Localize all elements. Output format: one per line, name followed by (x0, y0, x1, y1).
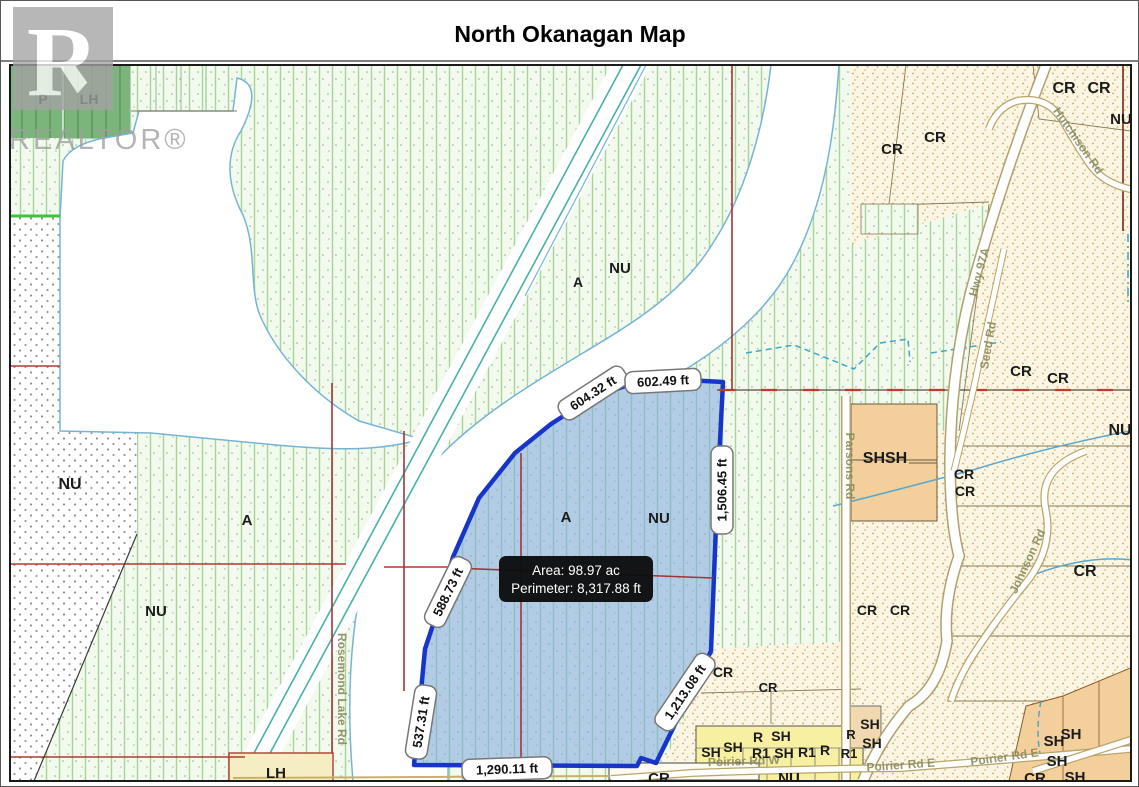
zone-label-a: A (242, 512, 253, 529)
svg-text:602.49 ft: 602.49 ft (637, 372, 690, 390)
zone-label-cr: CR (648, 770, 670, 787)
zone-label-cr: CR (1010, 363, 1032, 380)
zone-label-sh: SH (1065, 769, 1086, 786)
measurement-label: 602.49 ft (624, 368, 701, 394)
zone-label-a: A (573, 274, 583, 290)
zone-label-cr: CR (857, 602, 877, 618)
zone-label-nu: NU (145, 603, 167, 620)
zone-green-top-strip (131, 65, 237, 112)
zone-label-shsh: SHSH (863, 450, 907, 467)
zone-label-a-parcel: A (561, 509, 572, 526)
zone-label-r1: R1 (752, 745, 770, 761)
zone-label-cr: CR (713, 664, 733, 680)
realtor-watermark-text: REALTOR® (9, 124, 189, 156)
zone-label-lh: LH (266, 765, 286, 782)
zone-label-cr: CR (924, 129, 946, 146)
zone-label-r: R (753, 729, 763, 745)
zone-label-r1: R1 (798, 744, 816, 760)
zone-label-nu: NU (1108, 422, 1131, 439)
svg-text:1,506.45 ft: 1,506.45 ft (715, 458, 730, 522)
zone-label-nu: NU (778, 770, 800, 787)
page-title: North Okanagan Map (454, 21, 685, 47)
svg-text:1,290.11 ft: 1,290.11 ft (476, 760, 539, 777)
map-page: Hwy 97A Seed Rd Hutchison Rd Parsons Rd … (0, 0, 1139, 787)
zone-label-sh: SH (701, 744, 720, 760)
zone-label-cr: CR (881, 141, 903, 158)
zone-label-sh: SH (862, 735, 881, 751)
zone-label-sh: SH (1047, 753, 1068, 770)
zone-label-cr: CR (955, 483, 975, 499)
zone-label-nu-parcel: NU (648, 510, 670, 527)
zone-label-sh: SH (723, 739, 742, 755)
zone-label-cr: CR (759, 680, 778, 695)
zone-label-sh: SH (771, 728, 790, 744)
zone-label-sh: SH (860, 716, 879, 732)
tooltip-perimeter: Perimeter: 8,317.88 ft (511, 581, 641, 596)
tooltip-area: Area: 98.97 ac (532, 563, 620, 578)
measurement-label: 1,290.11 ft (462, 756, 553, 781)
zone-label-cr: CR (954, 466, 974, 482)
map-canvas[interactable]: Hwy 97A Seed Rd Hutchison Rd Parsons Rd … (1, 1, 1139, 787)
zone-label-r: R (846, 727, 856, 742)
measurement-label: 1,506.45 ft (711, 446, 733, 534)
zone-label-cr: CR (1073, 563, 1097, 580)
zone-label-cr: CR (1087, 80, 1111, 97)
zone-label-sh: SH (774, 745, 793, 761)
zone-label-r: R (820, 742, 830, 758)
zone-label-cr: CR (890, 602, 910, 618)
small-green-parcel (861, 204, 918, 234)
zone-label-cr: CR (1052, 80, 1076, 97)
zone-label-cr: CR (1047, 370, 1069, 387)
zone-label-nu: NU (58, 476, 81, 493)
road-label-parsons-rd: Parsons Rd (843, 433, 857, 500)
zone-label-nu: NU (1110, 111, 1132, 128)
parcel-tooltip: Area: 98.97 ac Perimeter: 8,317.88 ft (499, 556, 653, 602)
zone-label-nu: NU (609, 260, 631, 277)
road-label-rosemond-lake-rd: Rosemond Lake Rd (335, 633, 349, 745)
zone-label-r1: R1 (841, 746, 858, 761)
zone-label-cr: CR (1024, 770, 1046, 787)
zone-label-sh: SH (1061, 726, 1082, 743)
